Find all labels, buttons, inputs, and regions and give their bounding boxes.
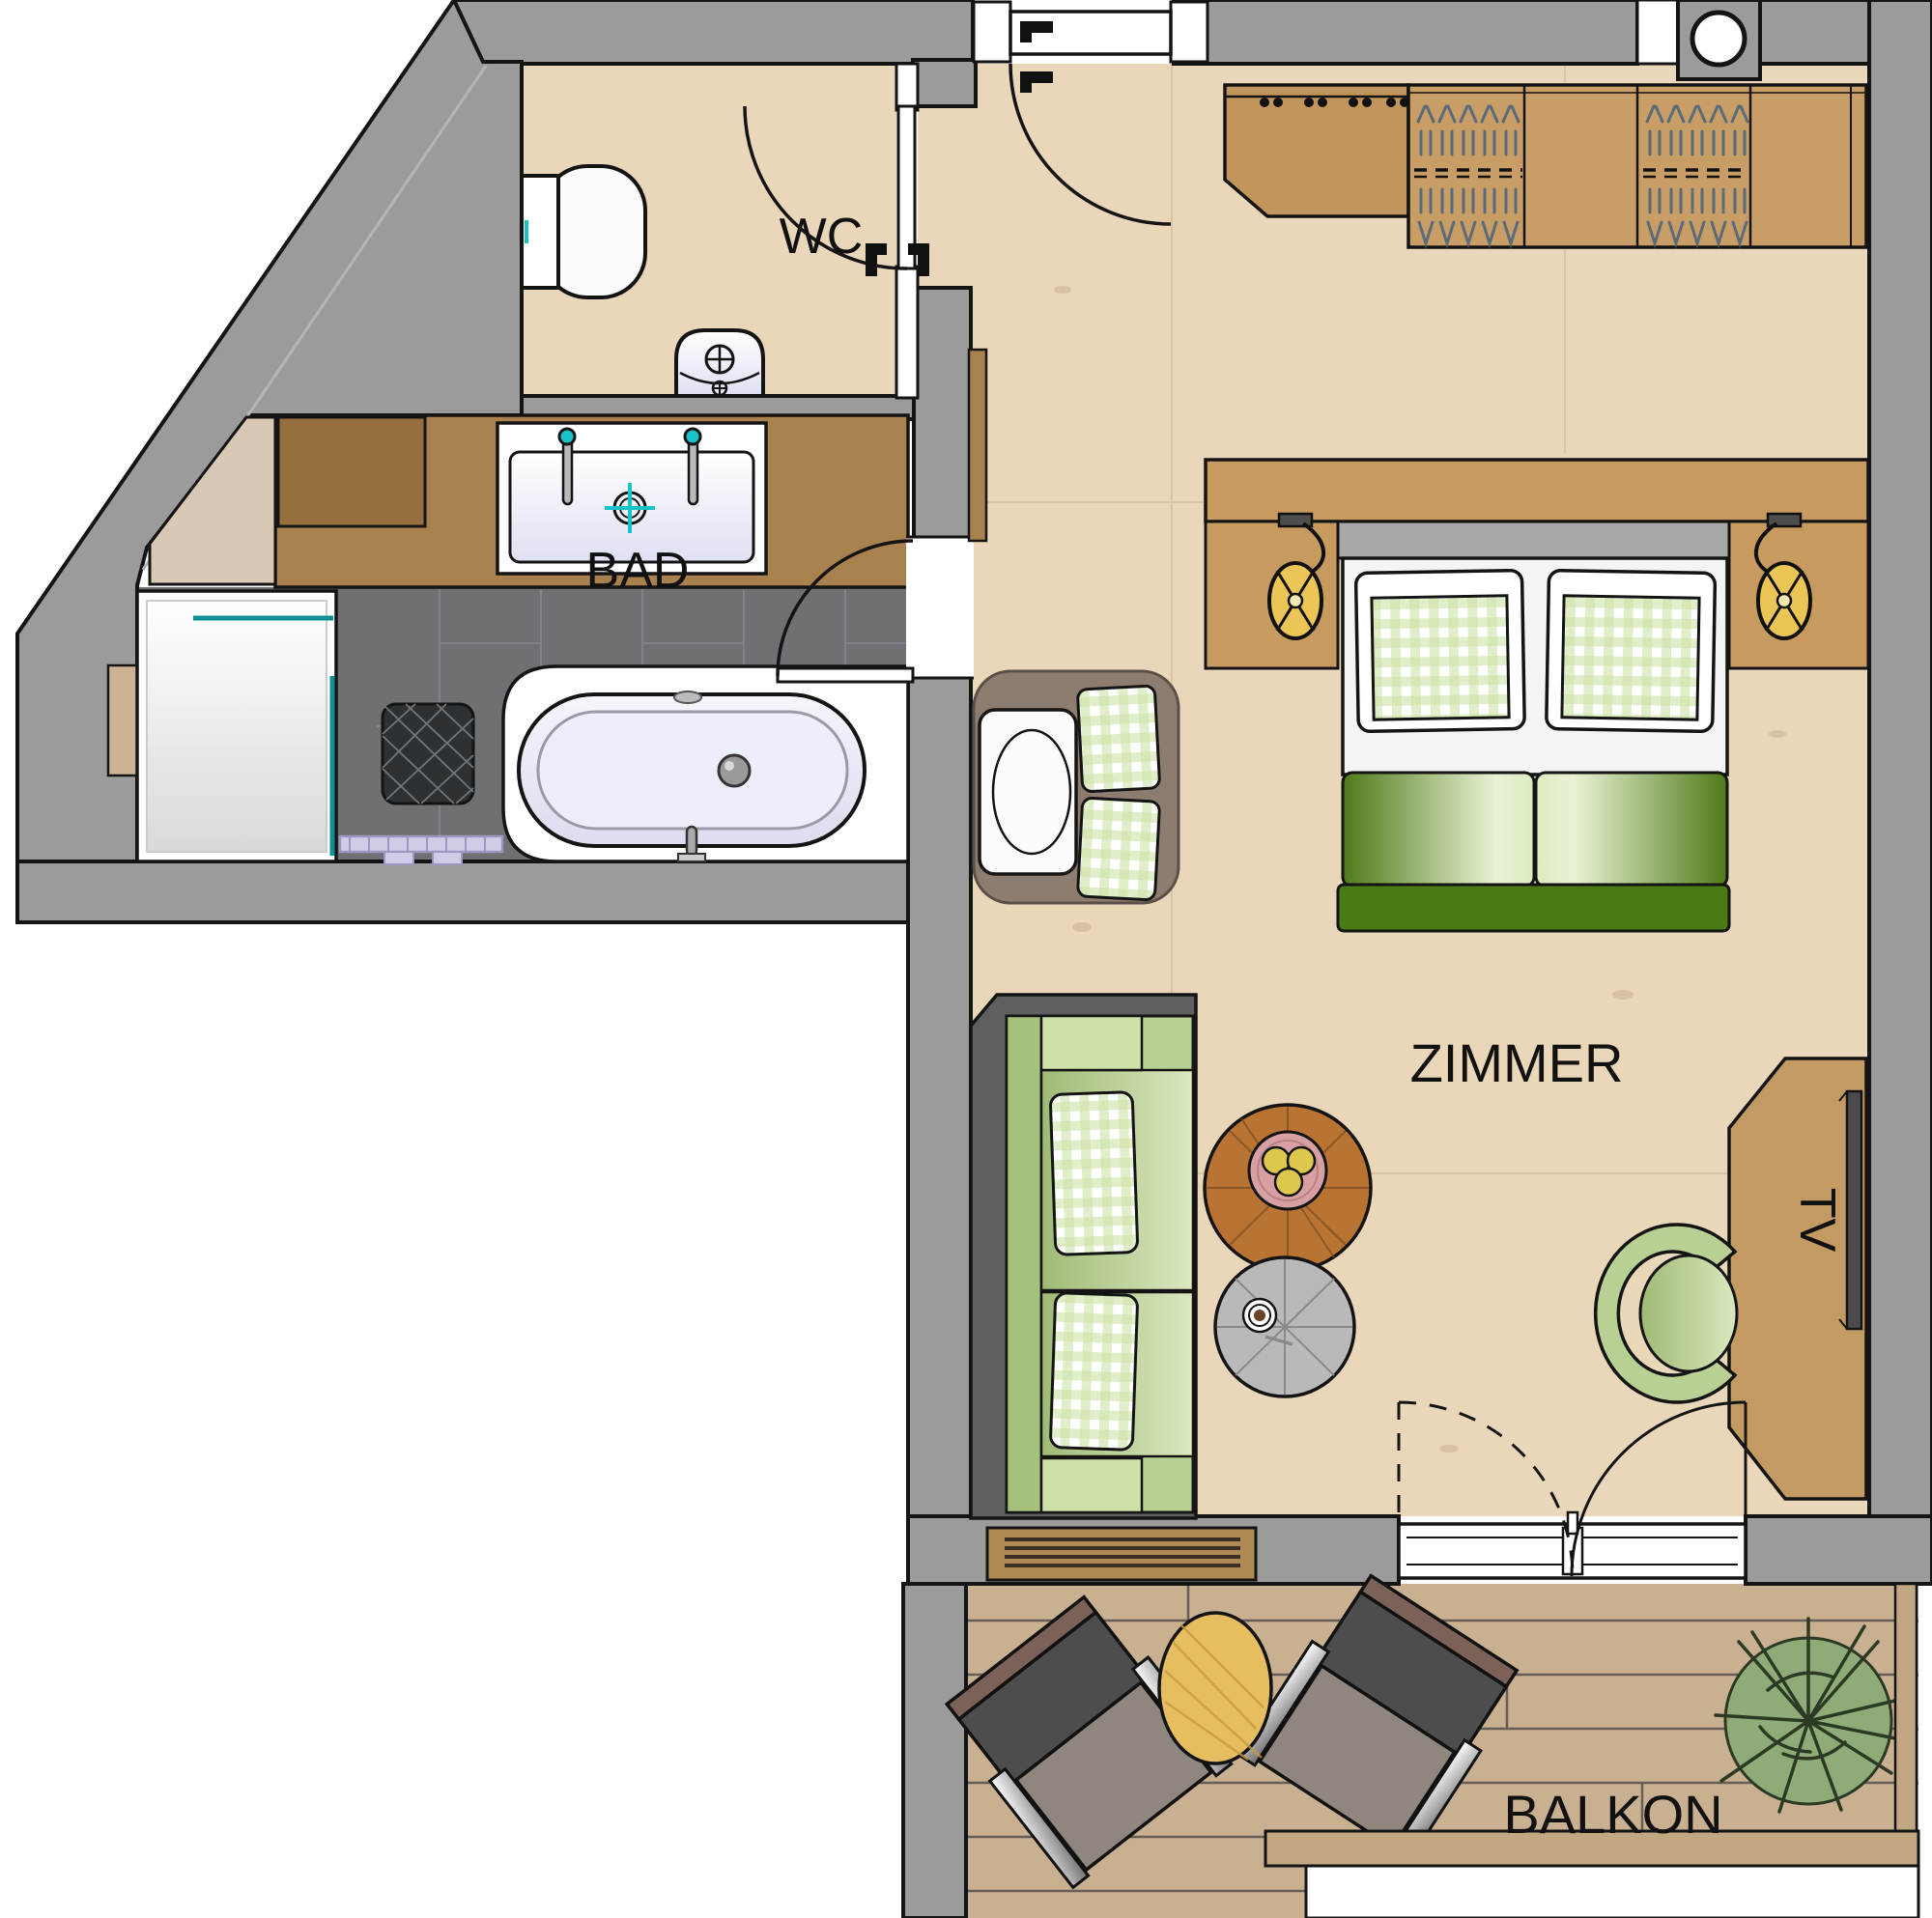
wall-room-left xyxy=(908,676,971,1584)
shower xyxy=(137,591,336,861)
floor-plan: WC BAD ZIMMER TV BALKON xyxy=(0,0,1932,1918)
door-handle-icon xyxy=(1020,21,1053,93)
sofa-backrest xyxy=(1007,1016,1041,1512)
rug-pillow-bottom xyxy=(1077,798,1159,900)
bath-mat xyxy=(383,704,473,804)
reading-armchair xyxy=(980,710,1076,874)
pillow-left xyxy=(1355,570,1524,731)
pillow-right xyxy=(1547,571,1716,732)
wall-bath-bottom xyxy=(17,861,913,922)
wall-bath-right-upper xyxy=(914,288,971,539)
duvet-left xyxy=(1343,773,1534,887)
rug-pillow-top xyxy=(1077,686,1159,792)
tv-sideboard xyxy=(1729,1058,1866,1499)
pipe-icon xyxy=(1692,13,1745,65)
wall-balcony-left xyxy=(903,1584,966,1918)
sofa-pillow-2 xyxy=(1050,1293,1138,1451)
fruit-plate xyxy=(1249,1132,1326,1209)
label-wc: WC xyxy=(780,209,864,265)
sofa-pillow-1 xyxy=(1050,1092,1138,1255)
bed-foot-runner xyxy=(1338,885,1729,931)
coat-rack xyxy=(1225,85,1409,216)
floor-plan-svg: WC BAD ZIMMER TV BALKON xyxy=(0,0,1932,1918)
freestanding-bathtub xyxy=(503,666,908,861)
headboard-panel xyxy=(1338,522,1729,558)
tv-screen xyxy=(1847,1091,1861,1329)
wardrobe-with-hangers xyxy=(1408,85,1866,247)
wall-right xyxy=(1869,0,1932,1584)
label-bathroom: BAD xyxy=(586,543,690,599)
wall-top-left xyxy=(454,0,973,64)
swivel-armchair xyxy=(1596,1225,1737,1402)
sofa-armrest-top xyxy=(1041,1016,1142,1070)
duvet-right xyxy=(1536,773,1727,887)
label-balcony: BALKON xyxy=(1503,1784,1722,1845)
wall-entry-stub xyxy=(913,60,976,106)
headboard-shelf xyxy=(1206,460,1868,522)
wall-top-right xyxy=(1760,0,1874,64)
sofa xyxy=(971,995,1196,1518)
toilet xyxy=(522,166,645,297)
label-room: ZIMMER xyxy=(1410,1032,1624,1093)
label-tv: TV xyxy=(1789,1188,1845,1253)
bathroom-door-leaf xyxy=(778,668,913,682)
wall-top-mid xyxy=(1174,0,1637,64)
sofa-armrest-bottom xyxy=(1041,1458,1142,1512)
wall-wood-cap xyxy=(969,350,986,541)
wall-room-bottom-right xyxy=(1746,1516,1932,1584)
tub-drain-icon xyxy=(719,755,750,786)
gray-side-table xyxy=(1215,1257,1354,1396)
balcony-table xyxy=(1159,1613,1271,1763)
wood-side-table xyxy=(1205,1105,1371,1271)
wc-hand-basin xyxy=(676,330,763,396)
floor-grille xyxy=(987,1528,1256,1580)
vanity-cabinet xyxy=(278,417,425,526)
